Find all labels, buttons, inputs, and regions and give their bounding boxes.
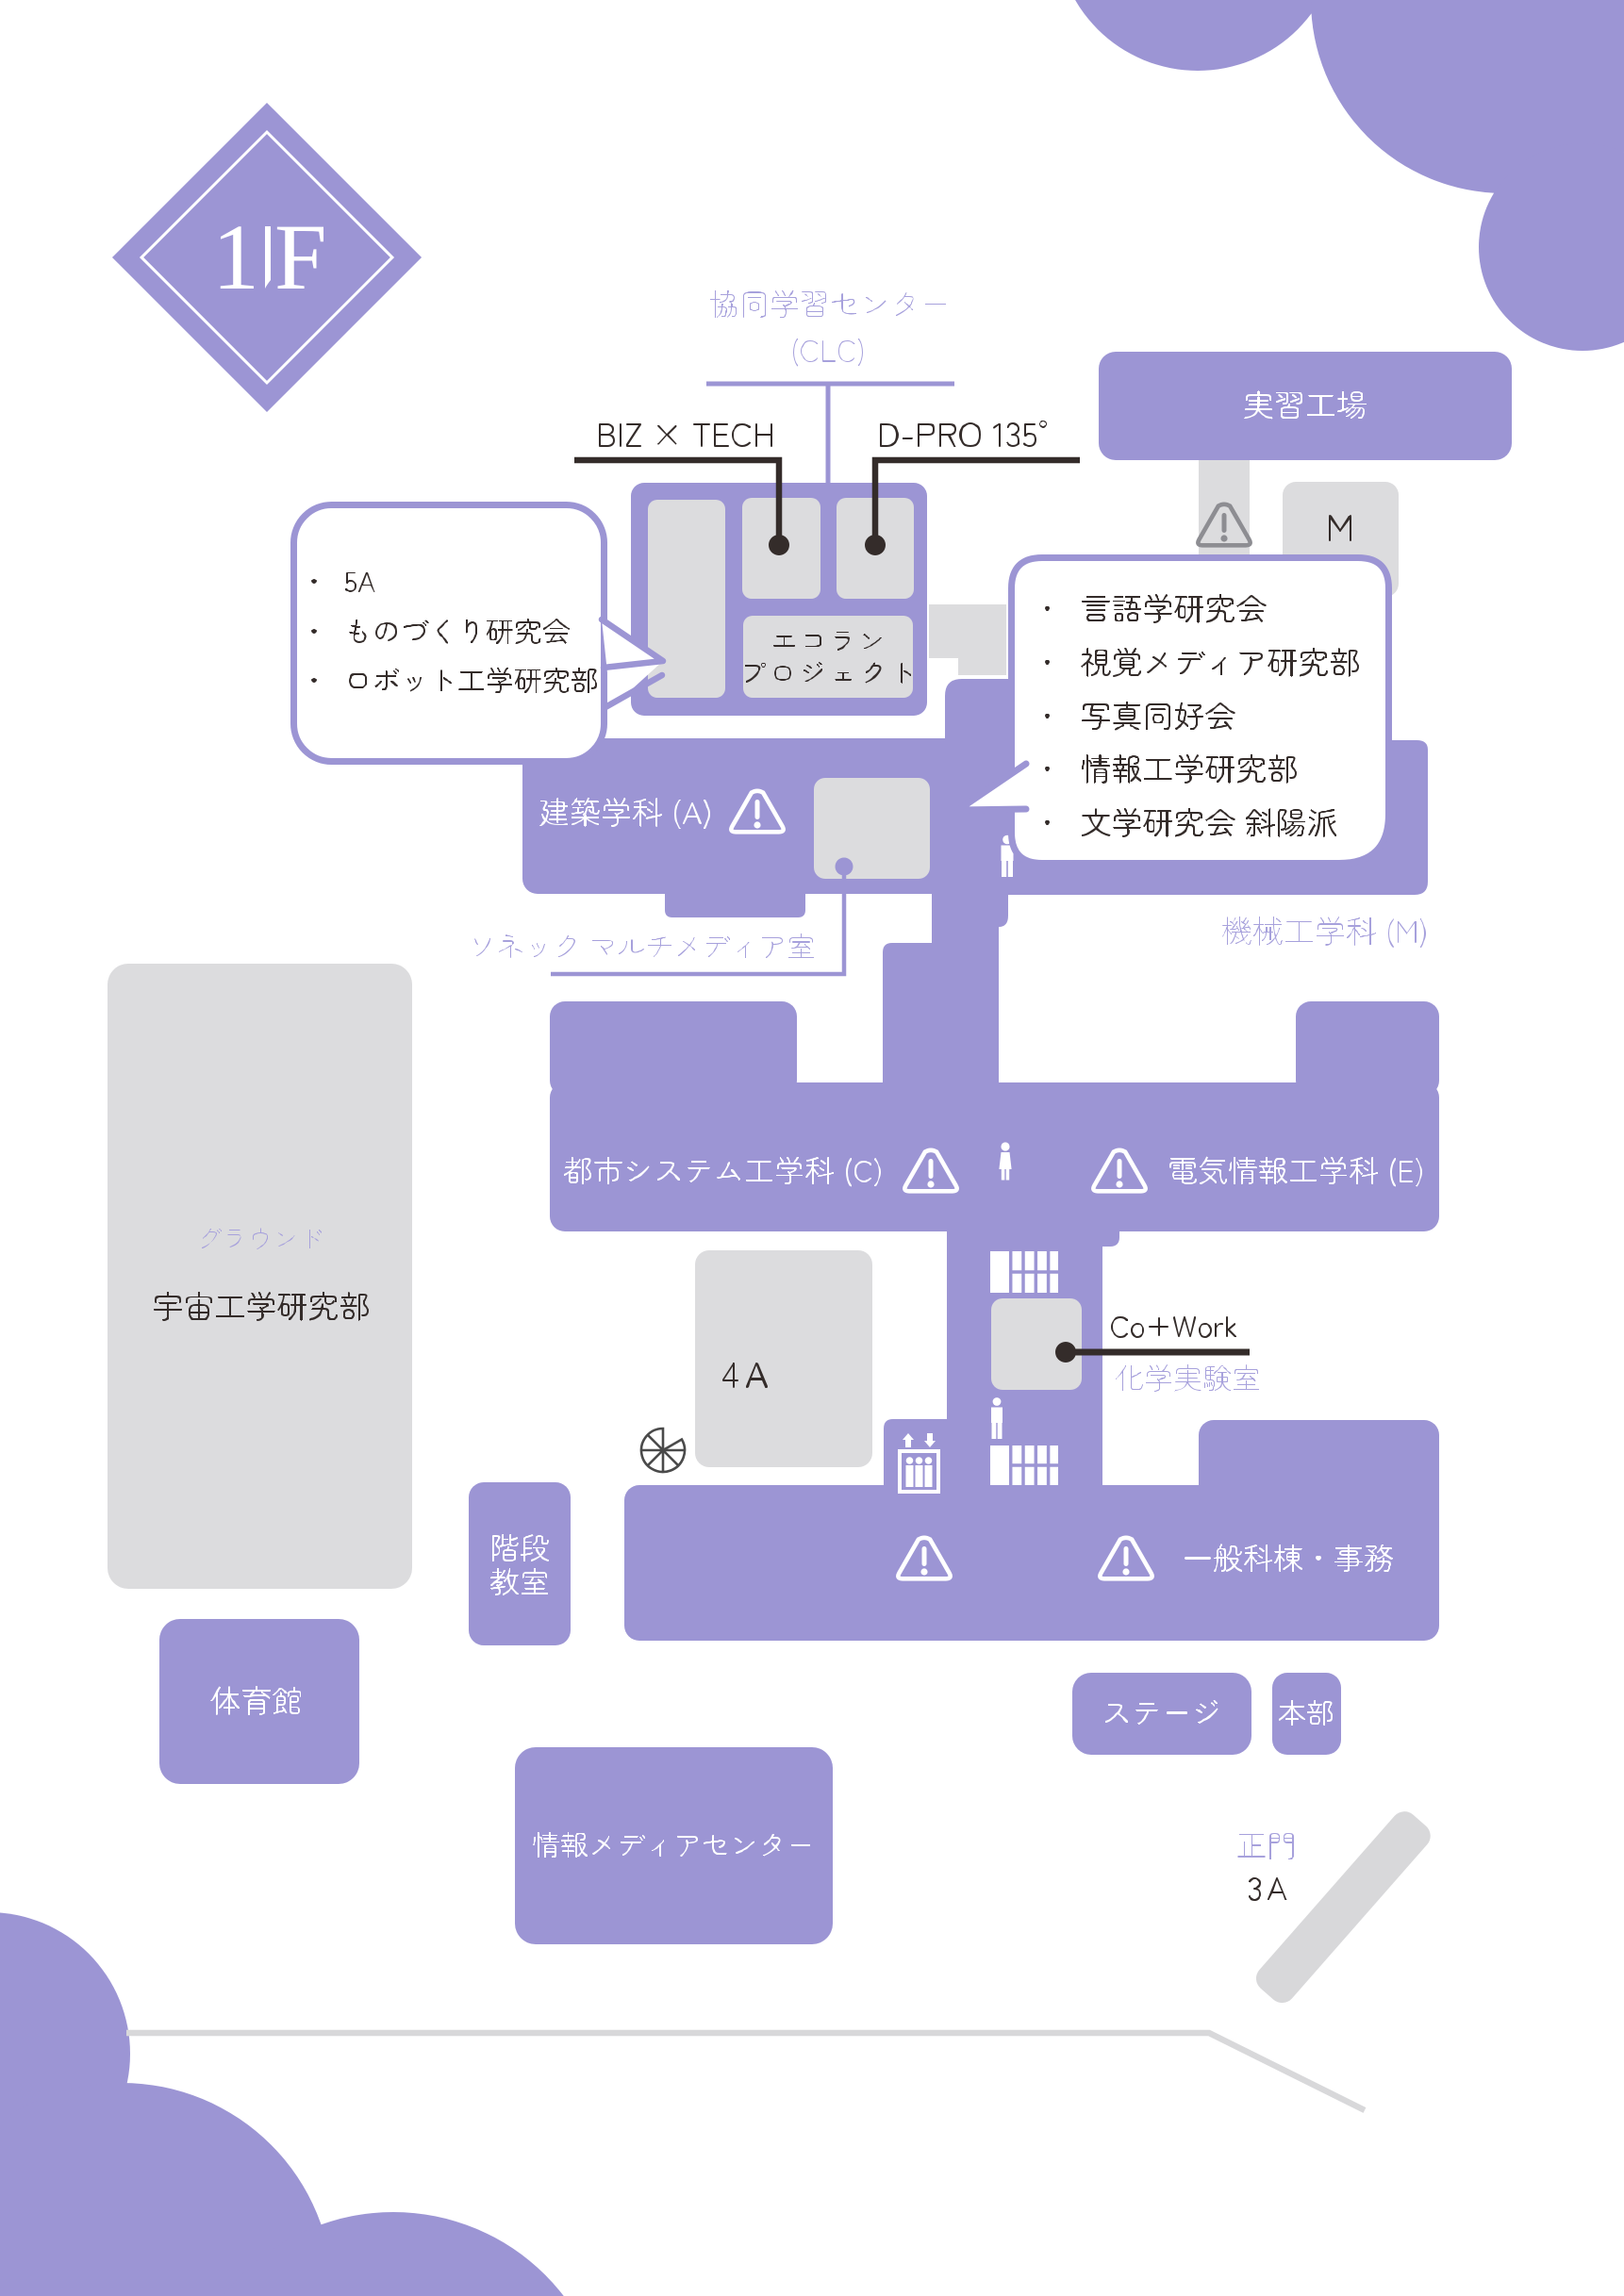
svg-text:F: F [274,205,327,309]
svg-text:1: 1 [212,205,259,309]
